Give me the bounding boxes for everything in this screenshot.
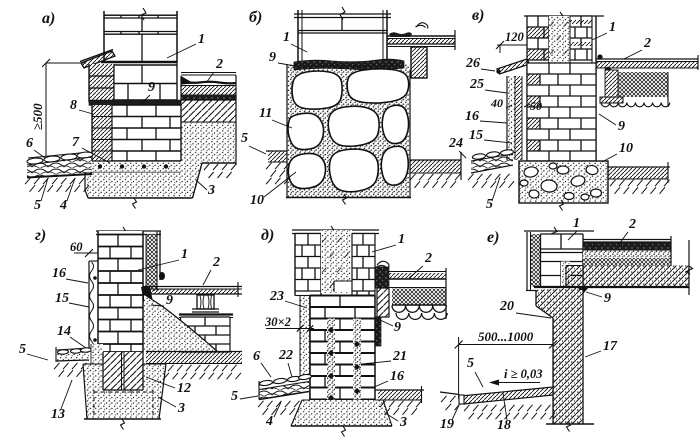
svg-text:1: 1 bbox=[181, 247, 188, 262]
svg-text:2: 2 bbox=[424, 251, 432, 266]
svg-text:5: 5 bbox=[34, 198, 41, 213]
svg-text:5: 5 bbox=[241, 131, 248, 146]
svg-text:9: 9 bbox=[166, 293, 173, 308]
svg-text:50: 50 bbox=[530, 99, 542, 113]
svg-text:9: 9 bbox=[618, 119, 625, 134]
svg-text:500...1000: 500...1000 bbox=[478, 329, 534, 344]
svg-text:15: 15 bbox=[469, 128, 483, 143]
svg-text:1: 1 bbox=[573, 216, 580, 231]
svg-text:17: 17 bbox=[603, 339, 618, 354]
svg-text:40: 40 bbox=[490, 96, 503, 110]
svg-text:1: 1 bbox=[198, 32, 205, 47]
svg-text:5: 5 bbox=[19, 342, 26, 357]
svg-text:2: 2 bbox=[643, 36, 651, 51]
svg-text:а): а) bbox=[42, 10, 55, 27]
svg-text:3: 3 bbox=[399, 415, 407, 430]
svg-text:4: 4 bbox=[265, 414, 273, 429]
svg-text:18: 18 bbox=[497, 418, 511, 433]
svg-text:5: 5 bbox=[486, 197, 493, 212]
svg-text:5: 5 bbox=[467, 356, 474, 371]
svg-text:в): в) bbox=[472, 7, 484, 24]
svg-text:10: 10 bbox=[250, 193, 264, 208]
svg-text:i ≥ 0,03: i ≥ 0,03 bbox=[504, 367, 542, 381]
svg-text:1: 1 bbox=[609, 20, 616, 35]
svg-text:6: 6 bbox=[26, 136, 33, 151]
svg-text:13: 13 bbox=[51, 407, 65, 422]
svg-text:9: 9 bbox=[604, 291, 611, 306]
svg-text:30×2: 30×2 bbox=[264, 315, 291, 329]
svg-text:4: 4 bbox=[59, 198, 67, 213]
svg-text:6: 6 bbox=[253, 349, 260, 364]
svg-text:16: 16 bbox=[465, 109, 479, 124]
svg-text:21: 21 bbox=[392, 349, 407, 364]
svg-text:≥500: ≥500 bbox=[30, 103, 45, 130]
svg-text:20: 20 bbox=[499, 299, 514, 314]
svg-text:24: 24 bbox=[448, 136, 463, 151]
svg-text:д): д) bbox=[261, 227, 274, 244]
svg-text:5: 5 bbox=[231, 389, 238, 404]
svg-text:16: 16 bbox=[52, 266, 66, 281]
svg-text:г): г) bbox=[35, 227, 46, 244]
svg-text:2: 2 bbox=[212, 255, 220, 270]
svg-text:1: 1 bbox=[283, 30, 290, 45]
svg-text:120: 120 bbox=[505, 30, 525, 44]
svg-text:60: 60 bbox=[70, 240, 83, 254]
svg-text:9: 9 bbox=[394, 320, 401, 335]
svg-text:2: 2 bbox=[215, 57, 223, 72]
svg-text:25: 25 bbox=[469, 77, 484, 92]
svg-text:2: 2 bbox=[628, 217, 636, 232]
svg-text:14: 14 bbox=[57, 324, 71, 339]
svg-text:22: 22 bbox=[278, 348, 293, 363]
svg-text:7: 7 bbox=[72, 135, 80, 150]
svg-text:е): е) bbox=[487, 229, 499, 246]
svg-text:16: 16 bbox=[390, 369, 404, 384]
svg-text:3: 3 bbox=[177, 401, 185, 416]
svg-text:8: 8 bbox=[70, 98, 77, 113]
svg-text:9: 9 bbox=[148, 80, 155, 95]
svg-text:1: 1 bbox=[398, 232, 405, 247]
svg-text:3: 3 bbox=[207, 183, 215, 198]
svg-text:26: 26 bbox=[465, 56, 480, 71]
svg-text:23: 23 bbox=[269, 289, 284, 304]
svg-text:15: 15 bbox=[55, 291, 69, 306]
svg-text:9: 9 bbox=[269, 50, 276, 65]
svg-text:10: 10 bbox=[619, 141, 633, 156]
svg-text:12: 12 bbox=[177, 381, 191, 396]
svg-text:11: 11 bbox=[259, 106, 272, 121]
svg-text:б): б) bbox=[249, 9, 262, 26]
